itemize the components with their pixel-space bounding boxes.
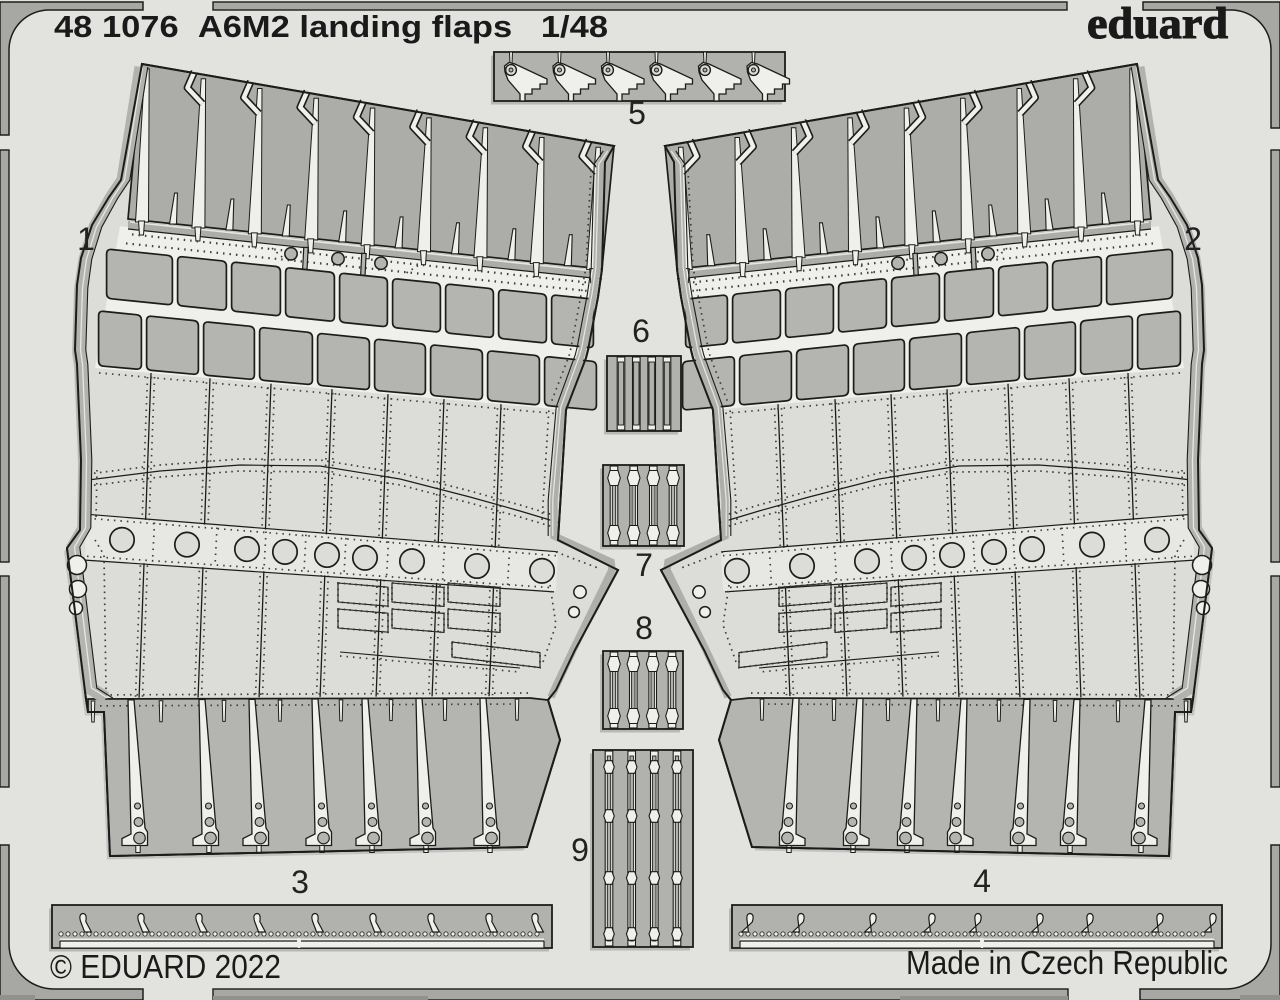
svg-text:7: 7 — [635, 547, 653, 583]
svg-text:3: 3 — [291, 864, 309, 900]
svg-text:© EDUARD 2022: © EDUARD 2022 — [50, 948, 281, 985]
svg-text:5: 5 — [628, 95, 646, 131]
svg-text:Made in Czech Republic: Made in Czech Republic — [906, 944, 1228, 981]
svg-text:2: 2 — [1184, 221, 1202, 257]
svg-text:6: 6 — [632, 313, 650, 349]
svg-text:48 1076 A6M2 landing flaps: 48 1076 A6M2 landing flaps 1/48 — [54, 9, 608, 44]
svg-text:4: 4 — [973, 863, 991, 899]
svg-text:8: 8 — [635, 610, 653, 646]
svg-text:eduard: eduard — [1087, 0, 1228, 48]
svg-text:9: 9 — [571, 832, 589, 868]
svg-text:1: 1 — [77, 221, 95, 257]
